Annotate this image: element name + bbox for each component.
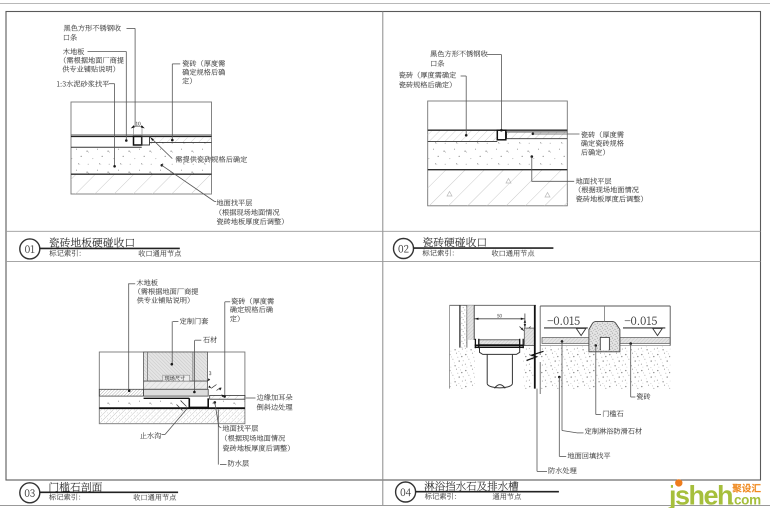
svg-text:.com: .com	[731, 492, 762, 507]
